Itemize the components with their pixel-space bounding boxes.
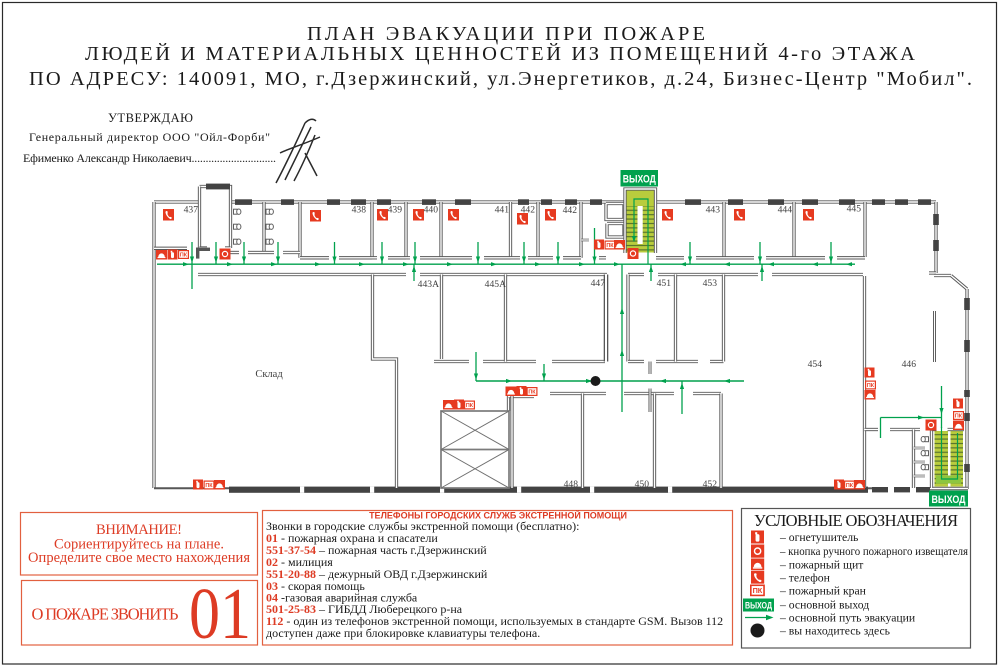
svg-text:441: 441 [495, 205, 510, 216]
svg-text:ВЫХОД: ВЫХОД [745, 600, 772, 610]
svg-text:Определите свое место нахожде: Определите свое место нахождения [28, 550, 250, 566]
svg-text:439: 439 [388, 205, 403, 216]
svg-text:– пожарный щит: – пожарный щит [779, 559, 863, 572]
svg-text:453: 453 [703, 278, 718, 289]
svg-text:УТВЕРЖДАЮ: УТВЕРЖДАЮ [108, 111, 193, 125]
svg-text:– вы находитесь здесь: – вы находитесь здесь [779, 625, 890, 638]
svg-text:442: 442 [521, 205, 536, 216]
svg-text:– основной путь эвакуации: – основной путь эвакуации [779, 612, 915, 625]
svg-text:445А: 445А [485, 279, 506, 290]
svg-text:– пожарный кран: – пожарный кран [779, 585, 866, 598]
svg-text:445: 445 [847, 204, 862, 215]
svg-text:– кнопка ручного пожарного и: – кнопка ручного пожарного извещателя [779, 545, 968, 558]
svg-text:437: 437 [184, 205, 199, 216]
svg-text:448: 448 [564, 479, 579, 490]
svg-text:452: 452 [703, 479, 718, 490]
svg-text:Генеральный директор ООО "Ой: Генеральный директор ООО "Ойл-Форби" [29, 130, 270, 144]
svg-text:01: 01 [189, 573, 251, 654]
svg-text:451: 451 [657, 278, 672, 289]
svg-text:УСЛОВНЫЕ ОБОЗНАЧЕНИЯ: УСЛОВНЫЕ ОБОЗНАЧЕНИЯ [754, 511, 958, 530]
svg-text:438: 438 [352, 205, 367, 216]
svg-text:ПО АДРЕСУ: 140091, МО, г.Дзе: ПО АДРЕСУ: 140091, МО, г.Дзержинский, ул… [29, 68, 972, 90]
svg-text:– огнетушитель: – огнетушитель [779, 531, 858, 544]
svg-text:О ПОЖАРЕ ЗВОНИТЬ: О ПОЖАРЕ ЗВОНИТЬ [32, 605, 179, 624]
svg-text:ПЛАН ЭВАКУАЦИИ ПРИ ПОЖАРЕ: ПЛАН ЭВАКУАЦИИ ПРИ ПОЖАРЕ [307, 23, 705, 45]
svg-text:440: 440 [424, 205, 439, 216]
svg-text:444: 444 [778, 205, 793, 216]
svg-text:446: 446 [902, 359, 917, 370]
svg-text:454: 454 [808, 359, 823, 370]
svg-text:ВЫХОД: ВЫХОД [932, 494, 966, 506]
svg-text:ЛЮДЕЙ И МАТЕРИАЛЬНЫХ ЦЕННОСТЕЙ: ЛЮДЕЙ И МАТЕРИАЛЬНЫХ ЦЕННОСТЕЙ ИЗ ПОМЕЩЕ… [85, 42, 915, 65]
svg-text:443А: 443А [418, 279, 439, 290]
svg-text:Ефименко Александр Николаеви: Ефименко Александр Николаевич...........… [23, 151, 276, 165]
svg-text:443: 443 [706, 205, 721, 216]
svg-text:доступен даже при блокировке к: доступен даже при блокировке клавиатуры … [266, 626, 540, 640]
svg-text:447: 447 [591, 278, 606, 289]
svg-text:Склад: Склад [255, 369, 283, 380]
svg-text:– телефон: – телефон [779, 572, 830, 585]
svg-text:– основной выход: – основной выход [779, 599, 869, 612]
svg-text:450: 450 [635, 479, 650, 490]
svg-text:442: 442 [563, 205, 578, 216]
svg-text:ВЫХОД: ВЫХОД [623, 173, 656, 185]
